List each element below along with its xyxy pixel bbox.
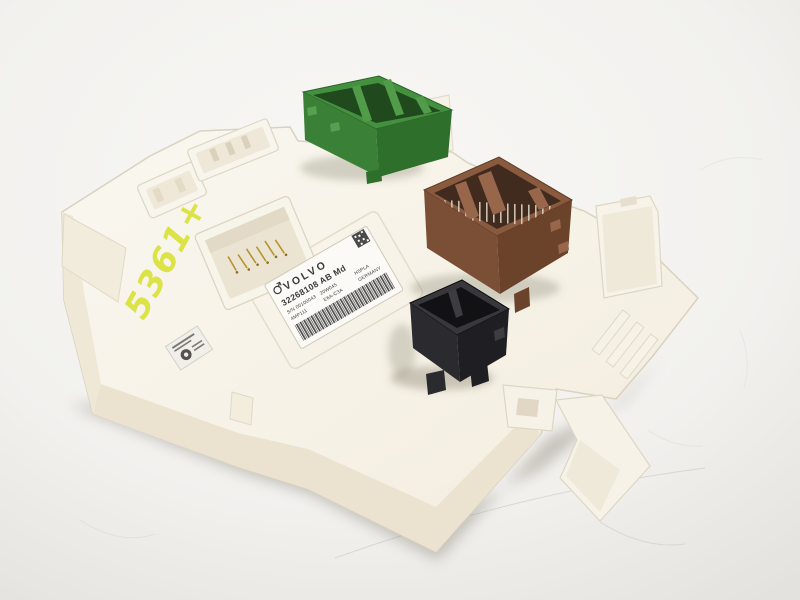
bottom-tab [230, 392, 253, 425]
retainer-tab [596, 196, 662, 298]
photo-canvas: VOLVO 32268108 AB Md S/N 00100043 20W045… [0, 0, 800, 600]
photo-of-volvo-body-control-module: VOLVO 32268108 AB Md S/N 00100043 20W045… [0, 0, 800, 600]
mounting-clip [503, 385, 557, 431]
